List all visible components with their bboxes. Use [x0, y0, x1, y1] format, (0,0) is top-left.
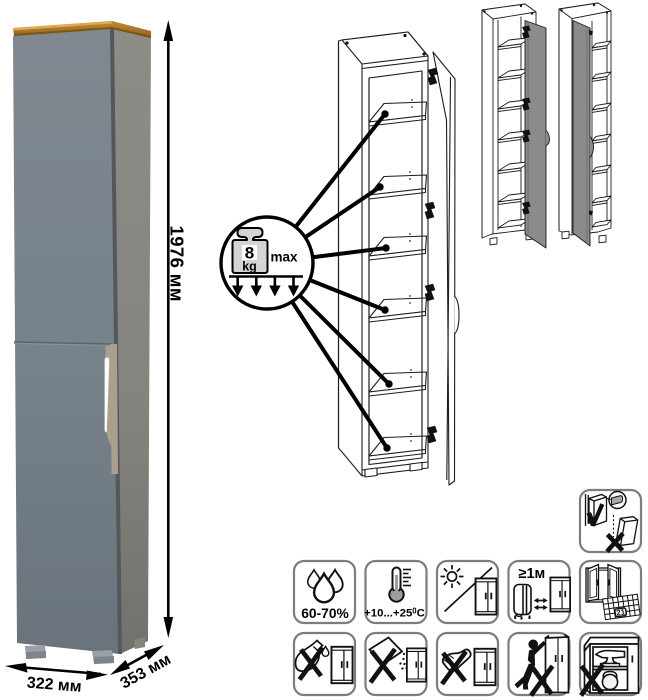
svg-text:21: 21 — [616, 607, 627, 617]
svg-text:322 мм: 322 мм — [26, 675, 82, 696]
svg-text:60-70%: 60-70% — [301, 606, 349, 621]
svg-text:353 мм: 353 мм — [118, 651, 174, 692]
svg-text:1976 мм: 1976 мм — [167, 226, 188, 302]
svg-text:≥1м: ≥1м — [519, 566, 546, 582]
svg-text:kg: kg — [242, 260, 257, 274]
svg-text:+10...+250С: +10...+250С — [364, 606, 425, 619]
svg-text:max: max — [271, 250, 299, 265]
